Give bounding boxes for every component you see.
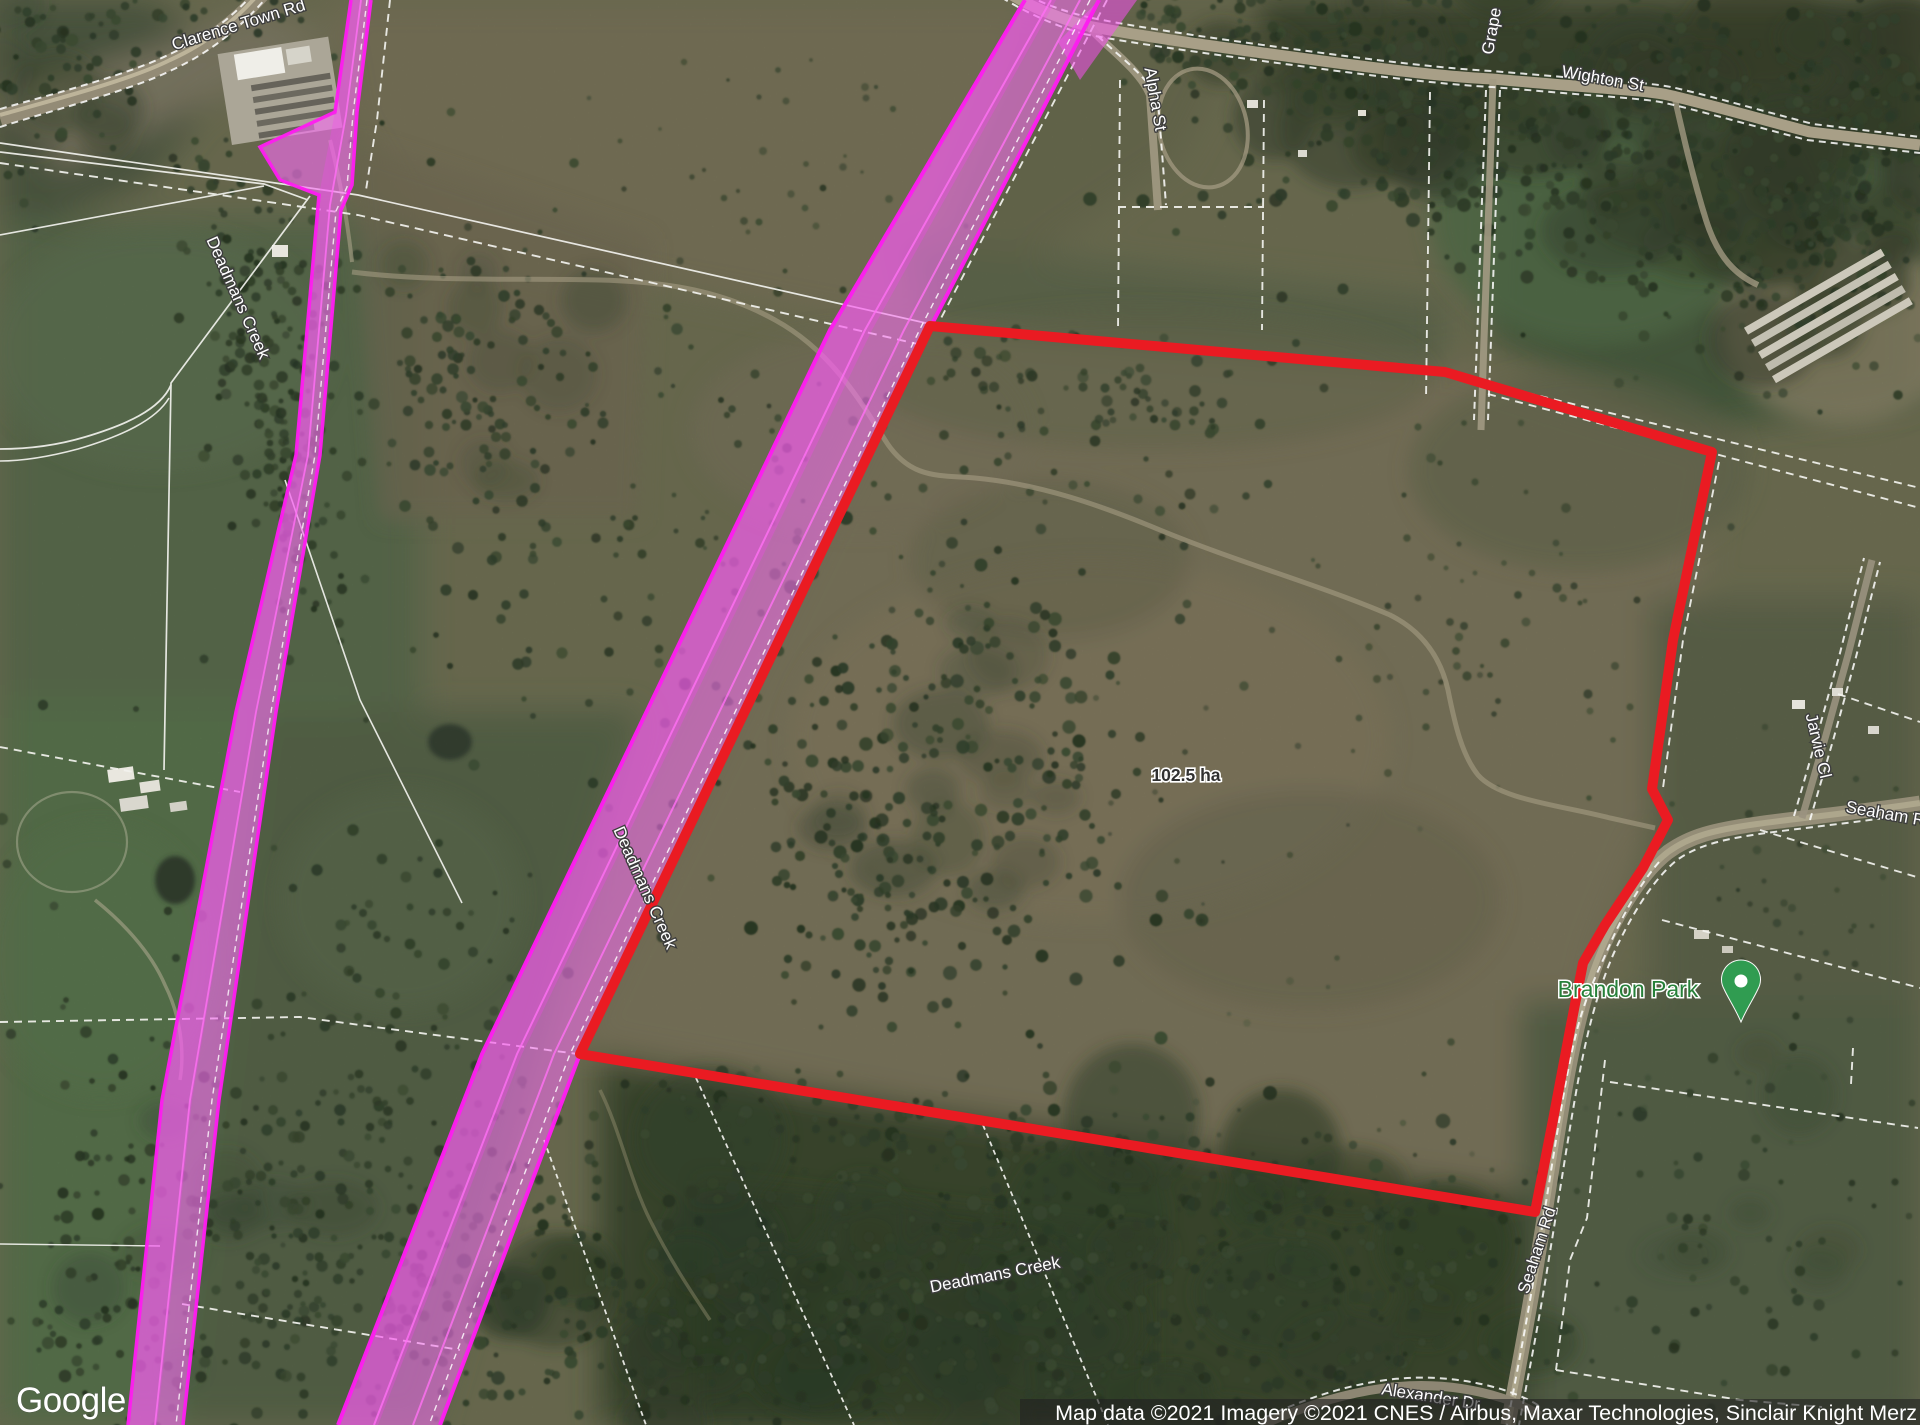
- svg-text:Google: Google: [16, 1381, 126, 1420]
- svg-text:102.5 ha: 102.5 ha: [1151, 765, 1220, 785]
- svg-text:Brandon Park: Brandon Park: [1558, 976, 1699, 1002]
- svg-text:Map data ©2021 Imagery ©2021 C: Map data ©2021 Imagery ©2021 CNES / Airb…: [1055, 1401, 1917, 1425]
